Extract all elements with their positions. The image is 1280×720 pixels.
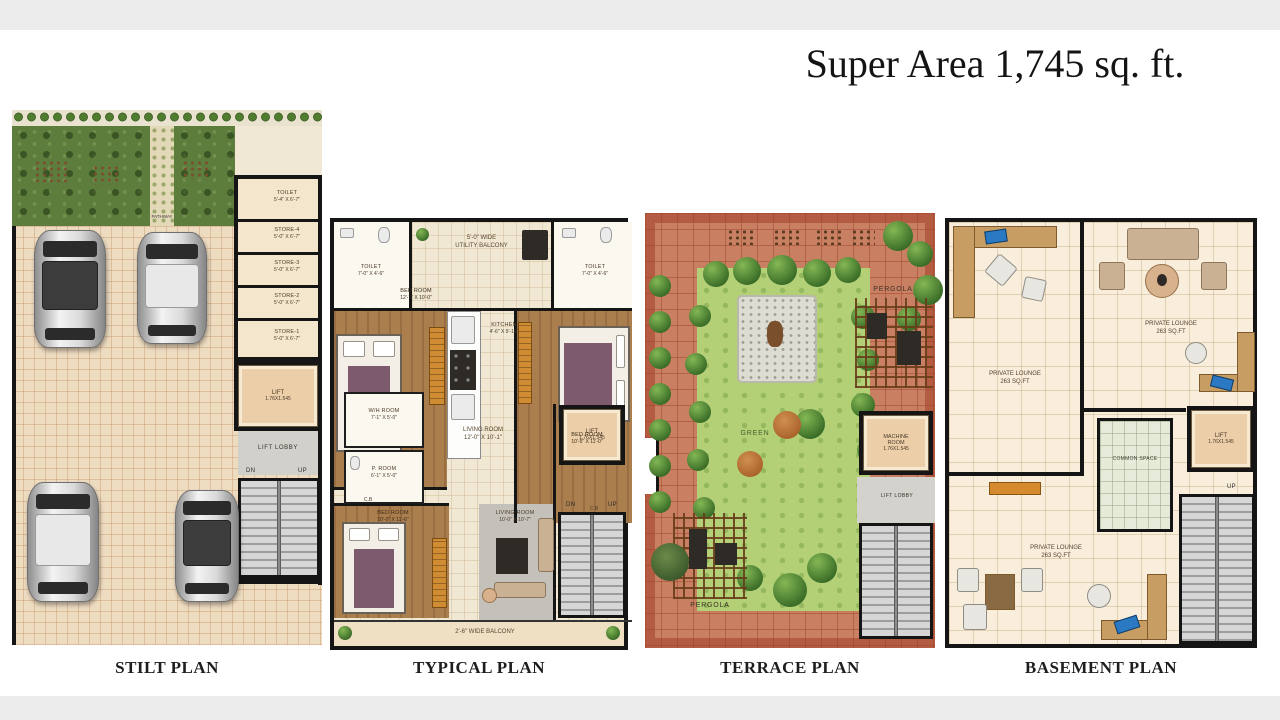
corner-desk bbox=[1237, 332, 1255, 392]
bottom-letterbox bbox=[0, 696, 1280, 720]
pergola-top-label: PERGOLA bbox=[855, 285, 931, 294]
entry-pad bbox=[235, 126, 322, 175]
common-space-label: COMMON SPACE bbox=[1101, 456, 1169, 463]
wc-fixture bbox=[600, 227, 612, 243]
chair bbox=[963, 604, 987, 630]
store3-label: STORE-35'-0" X 6'-7" bbox=[258, 260, 316, 274]
plant-icon bbox=[606, 626, 620, 640]
kitchen-sink bbox=[451, 316, 475, 344]
statue bbox=[767, 321, 783, 347]
caption-terrace: TERRACE PLAN bbox=[645, 658, 935, 678]
hedge-row bbox=[12, 110, 322, 126]
tree bbox=[687, 449, 709, 471]
tree bbox=[649, 383, 671, 405]
machine-room: MACHINE ROOM 1.76X1.545 bbox=[859, 411, 933, 475]
lounge3-label: PRIVATE LOUNGE263 SQ.FT bbox=[1001, 544, 1111, 560]
caption-stilt: STILT PLAN bbox=[12, 658, 322, 678]
living-room-label: LIVING ROOM12'-0" X 10'-1" bbox=[450, 426, 516, 442]
table-decor bbox=[1157, 274, 1167, 286]
tree bbox=[685, 353, 707, 375]
wall bbox=[1084, 408, 1186, 412]
chair bbox=[1021, 568, 1043, 592]
lift-lobby-label: LIFT LOBBY bbox=[243, 444, 313, 452]
bedroom-right-label: BED ROOM10'-5" X 11'-0" bbox=[552, 432, 622, 446]
bed bbox=[342, 522, 406, 614]
tree bbox=[649, 275, 671, 297]
lift: LIFT 1.76X1.545 bbox=[234, 361, 322, 431]
wc-fixture bbox=[378, 227, 390, 243]
caption-typical: TYPICAL PLAN bbox=[330, 658, 628, 678]
tree bbox=[907, 241, 933, 267]
armchair bbox=[1201, 262, 1227, 290]
tree bbox=[649, 347, 671, 369]
tree bbox=[703, 261, 729, 287]
plant-icon bbox=[416, 228, 429, 241]
toilet-left-label: TOILET7'-0" X 4'-6" bbox=[342, 264, 400, 278]
table-set bbox=[815, 229, 841, 245]
caption-basement: BASEMENT PLAN bbox=[945, 658, 1257, 678]
tv-unit bbox=[496, 538, 528, 574]
p-room-label: P. ROOM6'-1" X 5'-0" bbox=[352, 466, 416, 480]
console-shelf bbox=[989, 482, 1041, 495]
corner-desk bbox=[1147, 574, 1167, 640]
lift-dims: 1.76X1.545 bbox=[1208, 439, 1234, 445]
utility-balcony-label: 5'-0" WIDEUTILITY BALCONY bbox=[429, 234, 534, 250]
chair bbox=[1087, 584, 1111, 608]
toilet-right-label: TOILET7'-0" X 4'-6" bbox=[566, 264, 624, 278]
sofa bbox=[494, 582, 546, 598]
table-set bbox=[851, 229, 875, 245]
dn-label: DN bbox=[566, 502, 575, 508]
wall bbox=[334, 620, 632, 622]
table-set bbox=[773, 229, 799, 245]
up-label: UP bbox=[1227, 484, 1236, 490]
plant-icon bbox=[338, 626, 352, 640]
side-table bbox=[482, 588, 497, 603]
armchair bbox=[1099, 262, 1125, 290]
lift: LIFT 1.76X1.545 bbox=[1187, 406, 1255, 472]
bedroom-left-label: BED ROOM12'-7" X 10'-0" bbox=[386, 288, 446, 302]
table bbox=[985, 574, 1015, 610]
pergola-structure bbox=[855, 298, 933, 388]
mulch-circle bbox=[737, 451, 763, 477]
wh-room-label: W/H ROOM7'-1" X 5'-0" bbox=[352, 408, 416, 422]
bedroom-bottom-label: BED ROOM10'-0" X 11'-6" bbox=[362, 510, 424, 524]
store4-label: STORE-45'-0" X 6'-7" bbox=[258, 227, 316, 241]
car-sedan bbox=[27, 482, 99, 602]
toilet-label: TOILET5'-4" X 6'-7" bbox=[258, 190, 316, 204]
tree bbox=[733, 257, 761, 285]
washing-machine bbox=[522, 230, 548, 260]
living-room2-label: LIVING ROOM10'-0" X 10'-7" bbox=[484, 510, 546, 524]
pathway-label: PATHWAY bbox=[142, 214, 182, 220]
dn-label: DN bbox=[246, 468, 255, 474]
up-label: UP bbox=[608, 502, 617, 508]
wall bbox=[949, 472, 1084, 476]
common-space bbox=[1097, 418, 1173, 532]
staircase bbox=[558, 512, 626, 618]
pergola-furniture bbox=[867, 313, 887, 339]
car-sedan-dark-roof bbox=[175, 490, 239, 602]
typical-plan: TOILET7'-0" X 4'-6" 5'-0" WIDEUTILITY BA… bbox=[330, 218, 628, 650]
basement-plan: PRIVATE LOUNGE263 SQ.FT PRIVATE LOUNGE26… bbox=[945, 218, 1257, 648]
wardrobe bbox=[429, 327, 445, 405]
pergola-furniture bbox=[715, 543, 737, 565]
wall bbox=[1080, 222, 1084, 476]
corner-desk bbox=[953, 226, 975, 318]
store2-label: STORE-25'-0" X 6'-7" bbox=[258, 293, 316, 307]
tree bbox=[689, 305, 711, 327]
wall bbox=[514, 311, 517, 523]
floor-plan-sheet: Super Area 1,745 sq. ft. PATHWAY TOILET5… bbox=[0, 0, 1280, 720]
page-title: Super Area 1,745 sq. ft. bbox=[740, 40, 1250, 87]
staircase bbox=[238, 478, 320, 578]
cb-left-label: C.B bbox=[358, 497, 378, 504]
wall bbox=[334, 308, 632, 311]
tree bbox=[649, 491, 671, 513]
chair bbox=[1021, 276, 1047, 302]
up-label: UP bbox=[298, 468, 307, 474]
flower-bed bbox=[92, 165, 122, 185]
car-sedan bbox=[137, 232, 207, 344]
terrace-plan: PERGOLA GREEN MACHINE ROOM 1.76X1.545 LI… bbox=[645, 213, 935, 648]
table-set bbox=[727, 229, 753, 245]
pergola-furniture bbox=[897, 331, 921, 365]
car-suv bbox=[34, 230, 106, 348]
chair bbox=[984, 253, 1018, 287]
tree bbox=[835, 257, 861, 283]
flower-bed bbox=[34, 160, 68, 182]
pergola-bottom-label: PERGOLA bbox=[671, 601, 749, 610]
wardrobe bbox=[432, 538, 447, 608]
cb-right-label: C.B bbox=[584, 506, 604, 513]
kitchen-cabinet bbox=[451, 394, 475, 420]
chair bbox=[957, 568, 979, 592]
lift-lobby-label: LIFT LOBBY bbox=[867, 493, 927, 500]
lounge2-label: PRIVATE LOUNGE263 SQ.FT bbox=[1121, 320, 1221, 336]
sink-fixture bbox=[562, 228, 576, 238]
top-letterbox bbox=[0, 0, 1280, 30]
lounge1-label: PRIVATE LOUNGE263 SQ.FT bbox=[965, 370, 1065, 386]
green-label: GREEN bbox=[725, 429, 785, 438]
tree bbox=[807, 553, 837, 583]
flower-bed bbox=[182, 160, 210, 180]
stove bbox=[450, 350, 476, 390]
lift-dims: 1.76X1.545 bbox=[265, 396, 291, 402]
staircase bbox=[1179, 494, 1255, 644]
store1-label: STORE-15'-0" X 6'-7" bbox=[258, 329, 316, 343]
stilt-plan: PATHWAY TOILET5'-4" X 6'-7" STORE-45'-0"… bbox=[12, 110, 322, 645]
sofa bbox=[1127, 228, 1199, 260]
pergola-furniture bbox=[689, 529, 707, 569]
staircase bbox=[859, 523, 933, 639]
tree bbox=[649, 419, 671, 441]
tree bbox=[767, 255, 797, 285]
lift-lobby bbox=[857, 477, 935, 523]
balcony-label: 2'-6" WIDE BALCONY bbox=[430, 628, 540, 636]
sofa bbox=[538, 518, 554, 572]
wall bbox=[12, 226, 16, 645]
tree bbox=[649, 455, 671, 477]
tree bbox=[689, 401, 711, 423]
wall bbox=[234, 578, 322, 584]
sink-fixture bbox=[340, 228, 354, 238]
tree bbox=[773, 573, 807, 607]
tree bbox=[649, 311, 671, 333]
tree bbox=[651, 543, 689, 581]
pathway bbox=[150, 126, 174, 226]
kitchen-label: KITCHEN4'-6" X 9'-10" bbox=[482, 322, 526, 336]
chair bbox=[1185, 342, 1207, 364]
tree bbox=[803, 259, 831, 287]
